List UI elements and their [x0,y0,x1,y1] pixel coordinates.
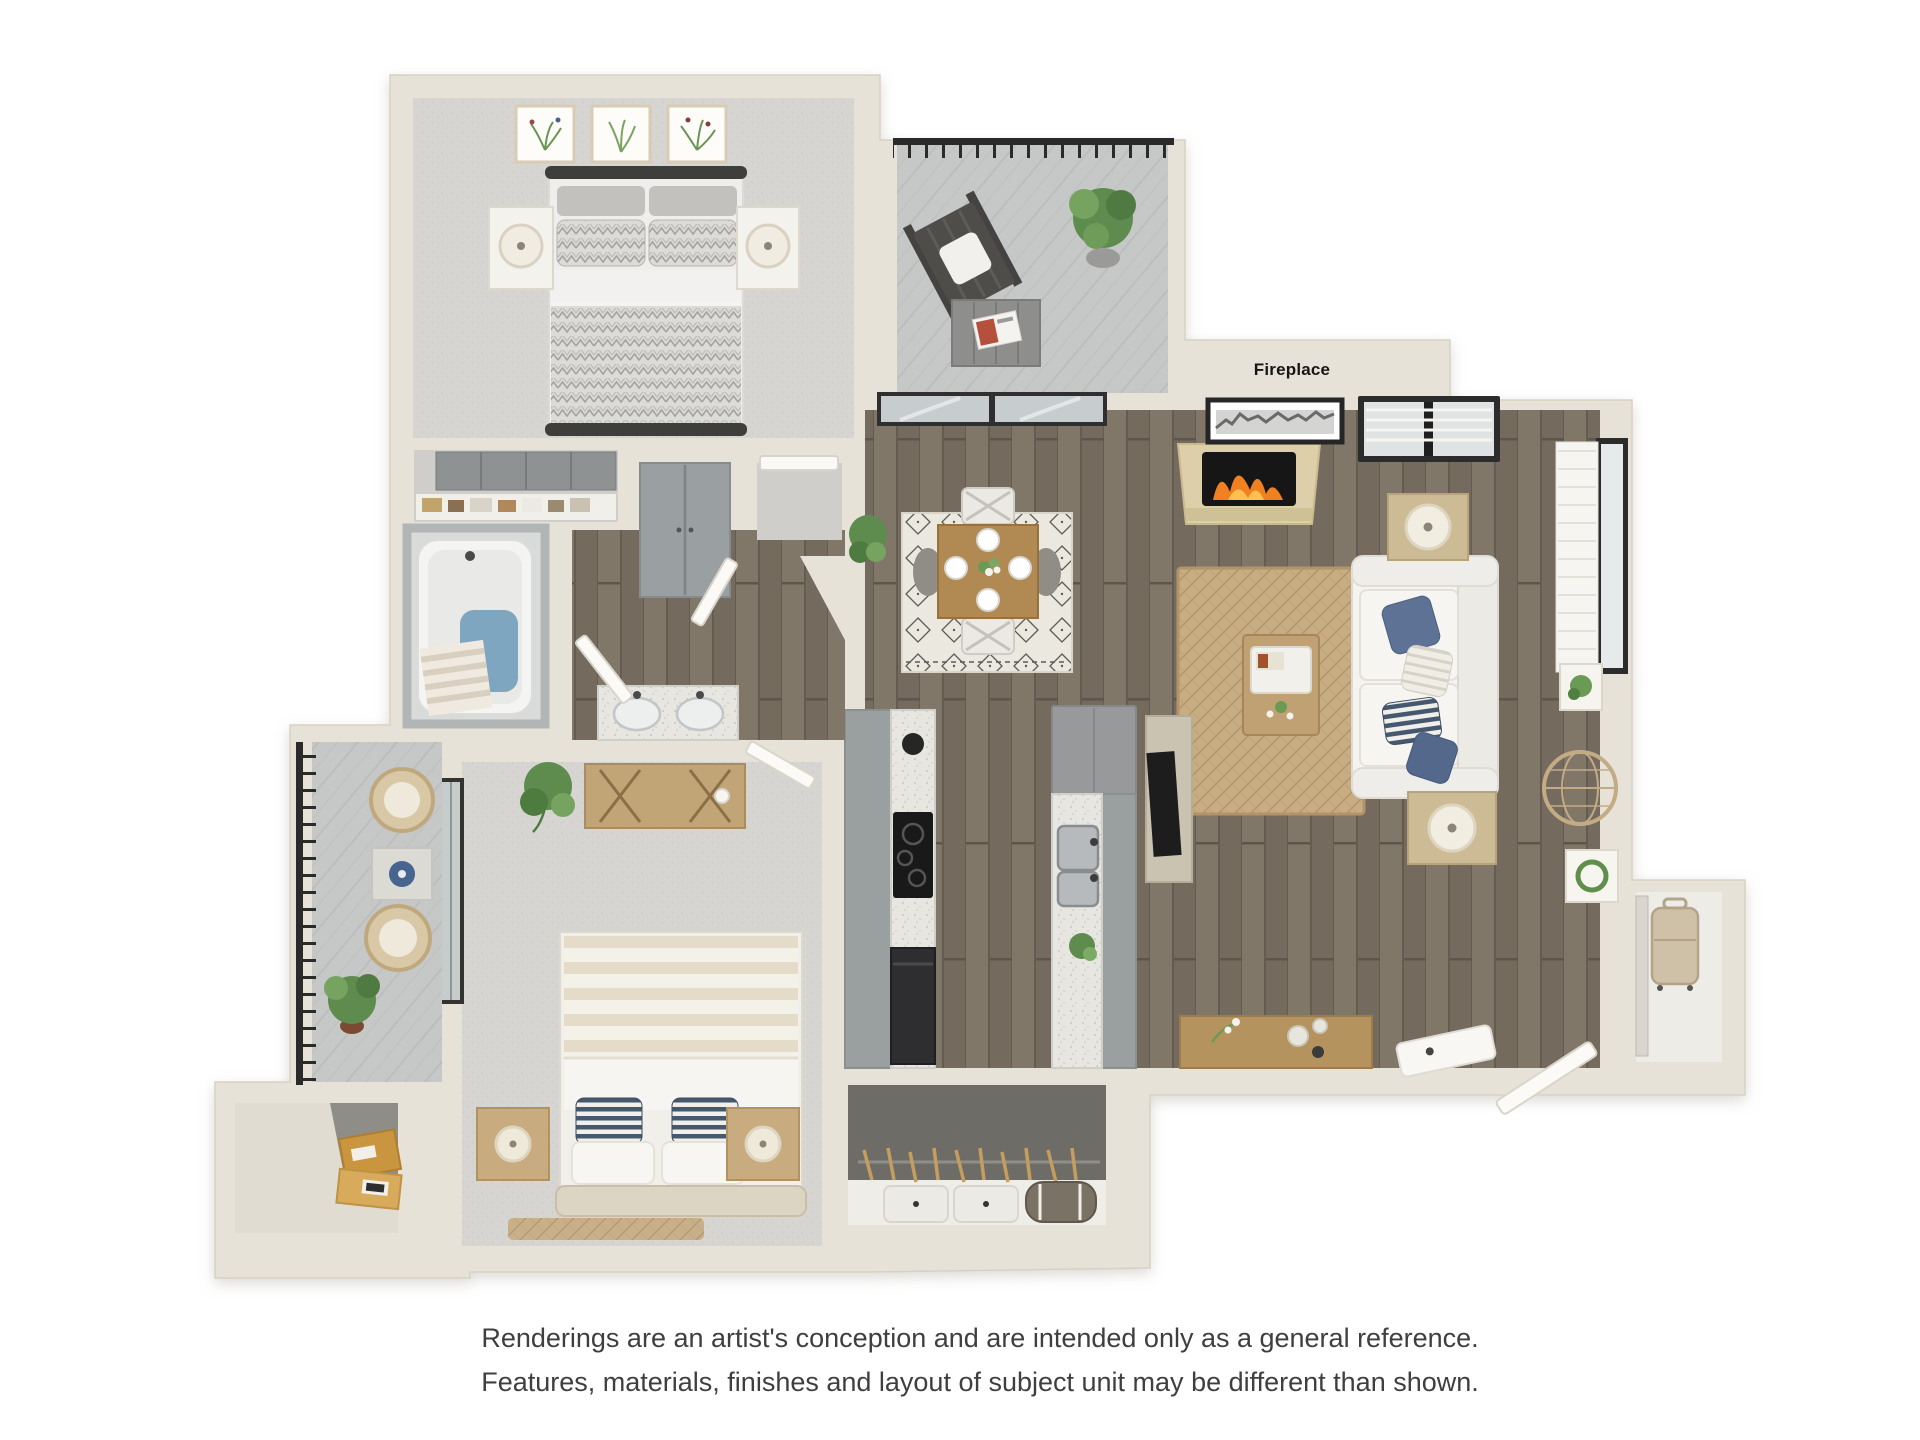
storage-bin-1 [884,1186,948,1222]
floor-plan-canvas: Fireplace Renderings are an artist's con… [0,0,1920,1440]
botanical-art-frames [516,106,726,162]
plate [945,557,967,579]
balcony-top-railing [893,138,1174,158]
alcove-door [760,456,838,470]
art-frame-1 [516,106,574,162]
balcony-left [296,742,442,1085]
dining-wall-plant [849,515,887,563]
nightstand-2-left [477,1108,549,1180]
kitchen-left-counter [845,710,935,1068]
walk-in-closet [414,450,618,522]
wall-decor-wreath-frame [1566,850,1618,902]
hall-alcove-floor [757,463,842,540]
duffel-bag [1026,1182,1096,1222]
sink-basin-1 [1058,826,1098,870]
suitcase [1652,899,1698,991]
papasan-chair-1 [371,769,433,831]
tv-console [1146,716,1192,882]
disclaimer: Renderings are an artist's conception an… [40,1316,1920,1404]
dining-area [902,488,1072,672]
nightstand-right [737,207,799,289]
entry-console-table [1180,1016,1372,1068]
sink-right [677,698,723,730]
sliding-glass-door [877,392,1107,426]
dining-chair-bottom [962,618,1014,654]
plate [977,589,999,611]
dining-chair-top [962,488,1014,524]
balcony-top [893,138,1174,393]
disclaimer-line-2: Features, materials, finishes and layout… [40,1360,1920,1404]
mug [715,789,729,803]
balcony-side-table [952,300,1040,366]
bedroom-1 [413,98,854,438]
art-frame-3 [668,106,726,162]
living-dining-area [849,392,1628,1115]
sofa [1352,556,1498,798]
plate [977,529,999,551]
utility-closet [1636,892,1722,1062]
side-table-top [1388,494,1468,560]
coffee-table [1243,635,1319,735]
bedside-jute-mat [508,1218,704,1240]
nightstand-2-right [727,1108,799,1180]
pillow-striped [1400,644,1455,699]
art-frame-2 [592,106,650,162]
closet-carpet [848,1085,1106,1185]
pillow-navy-1 [576,1098,642,1144]
kitchen-right-counter [1052,706,1136,1068]
disclaimer-line-1: Renderings are an artist's conception an… [40,1316,1920,1360]
bedroom-2 [438,741,822,1246]
window-top-right [1358,396,1500,462]
balcony-left-railing [296,742,316,1085]
bed-queen [545,166,747,436]
floor-plan-rendering [0,0,1920,1440]
fireplace [1178,444,1320,524]
utility-door [1636,896,1648,1056]
vertical-blinds [1556,442,1598,672]
storage-room [235,1103,402,1233]
pillow-white-1 [572,1142,654,1184]
city-art-frame [1208,400,1342,442]
striped-towel [420,640,493,716]
cardboard-boxes [336,1129,401,1209]
papasan-chair-2 [366,906,430,970]
side-table-bottom [1408,792,1496,864]
plate [1009,557,1031,579]
faucet [1090,838,1098,846]
entry-closet [848,1085,1106,1225]
balcony-left-table [372,848,432,900]
fireplace-label: Fireplace [1232,360,1352,380]
espresso-machine [902,733,924,755]
window-right-wall [1556,438,1628,674]
storage-bin-2 [954,1186,1018,1222]
tub-faucet [465,551,475,561]
bathroom [407,528,545,724]
nightstand-left [489,207,553,289]
headboard [556,1186,806,1216]
bedroom-2-desk [585,764,745,828]
wall-decor-plant-frame [1560,664,1602,710]
